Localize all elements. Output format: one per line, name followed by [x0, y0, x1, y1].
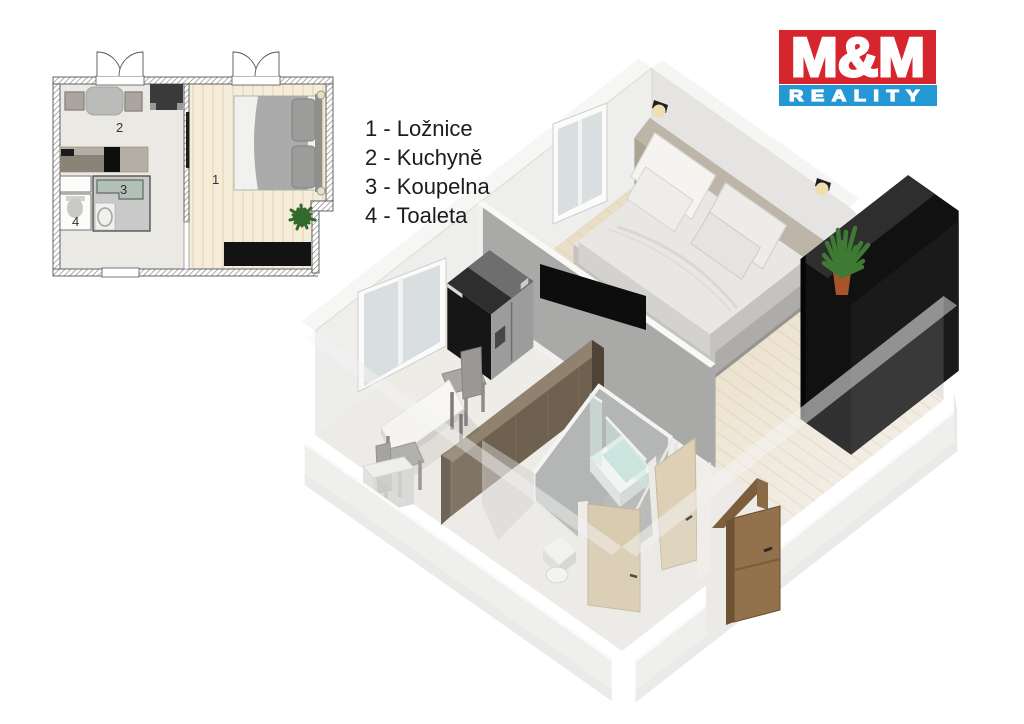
svg-text:M&M: M&M [791, 26, 925, 88]
svg-text:3 - Koupelna: 3 - Koupelna [365, 174, 491, 199]
svg-text:4 - Toaleta: 4 - Toaleta [365, 203, 468, 228]
svg-text:2: 2 [116, 120, 123, 135]
svg-text:3: 3 [120, 182, 127, 197]
svg-text:4: 4 [72, 214, 79, 229]
svg-text:1 - Ložnice: 1 - Ložnice [365, 116, 473, 141]
svg-text:1: 1 [212, 172, 219, 187]
svg-text:REALITY: REALITY [789, 88, 927, 105]
svg-text:2 - Kuchyně: 2 - Kuchyně [365, 145, 482, 170]
